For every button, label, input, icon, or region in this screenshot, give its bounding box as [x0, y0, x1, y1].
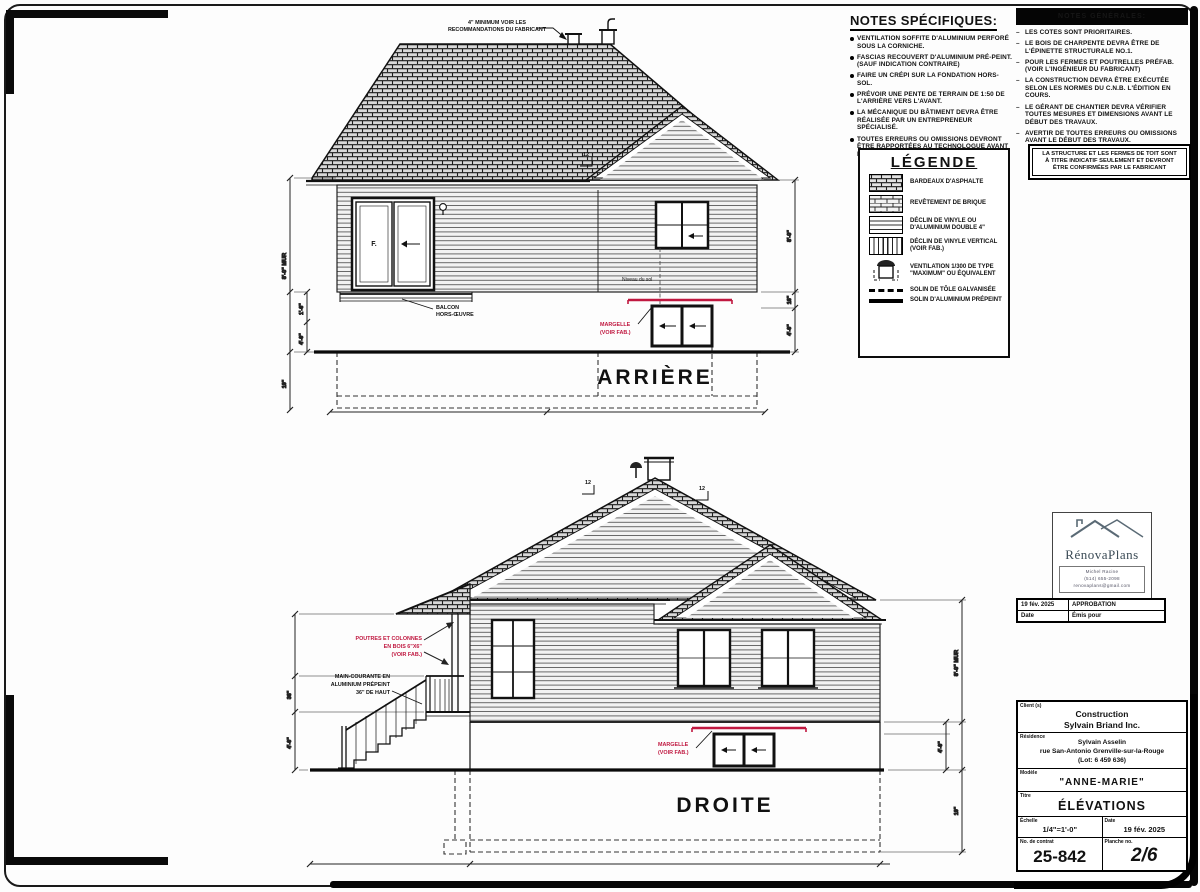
legend-item: SOLIN DE TÔLE GALVANISÉE	[868, 287, 1002, 294]
title-block: Client (s) Construction Sylvain Briand I…	[1016, 700, 1188, 872]
bullet-icon	[850, 56, 854, 60]
vent-note-line2: RECOMMANDATIONS DU FABRICANT	[448, 27, 547, 33]
right-basement-window	[714, 734, 774, 766]
legend-item: DÉCLIN DE VINYLE OU D'ALUMINIUM DOUBLE 4…	[868, 216, 1002, 234]
margelle-label-2: (VOIR FAB.)	[600, 330, 631, 336]
legend-label: VENTILATION 1/300 DE TYPE "MAXIMUM" OU É…	[910, 264, 1002, 278]
dash-icon: –	[1016, 77, 1022, 100]
note-text: LE GÉRANT DE CHANTIER DEVRA VÉRIFIER TOU…	[1025, 104, 1188, 127]
ground-level-label: Niveau du sol	[622, 277, 652, 283]
bullet-icon	[850, 111, 854, 115]
date-cell: Date 19 fév. 2025	[1103, 817, 1187, 837]
dim-rail-height: 36"	[287, 690, 293, 699]
renovaplans-logo: RénovaPlans Michel Racine (514) 655-2098…	[1052, 512, 1152, 602]
bullet-icon	[850, 138, 854, 142]
roof-vent-swatch-icon	[868, 258, 904, 284]
note-item: FAIRE UN CRÉPI SUR LA FONDATION HORS-SOL…	[850, 72, 1012, 87]
dim-footing: 10"	[282, 379, 288, 388]
posts-note-line3: (VOIR FAB.)	[391, 652, 422, 658]
right-bottom-dim-line	[307, 861, 890, 867]
solid-line-swatch-icon	[868, 299, 904, 303]
right-footing-dashed	[444, 770, 880, 854]
revision-date: 19 fév. 2025	[1018, 600, 1069, 610]
note-text: FASCIAS RECOUVERT D'ALUMINIUM PRÉ-PEINT.…	[857, 54, 1012, 69]
rear-roof-vents	[565, 19, 617, 44]
notes-specifiques-title: NOTES SPÉCIFIQUES:	[850, 13, 997, 31]
contract-cell: No. de contrat 25-842	[1018, 838, 1103, 870]
pitch-value: 12	[583, 152, 589, 158]
legend-item: VENTILATION 1/300 DE TYPE "MAXIMUM" OU É…	[868, 258, 1002, 284]
revision-table: 19 fév. 2025 APPROBATION Date Émis pour	[1016, 598, 1166, 623]
note-item: FASCIAS RECOUVERT D'ALUMINIUM PRÉ-PEINT.…	[850, 54, 1012, 69]
note-item: –LE GÉRANT DE CHANTIER DEVRA VÉRIFIER TO…	[1016, 104, 1188, 127]
right-handrail-annotation: MAIN-COURANTE EN ALUMINIUM PRÉPEINT 36" …	[331, 674, 422, 704]
client-line: Construction	[1020, 709, 1184, 720]
contact-phone: (514) 655-2098	[1060, 576, 1144, 583]
pitch-value-left: 12	[585, 480, 591, 486]
rear-balcony: BALCON HORS-ŒUVRE	[340, 292, 474, 318]
note-item: –LE BOIS DE CHARPENTE DEVRA ÊTRE DE L'ÉP…	[1016, 40, 1188, 55]
note-item: PRÉVOIR UNE PENTE DE TERRAIN DE 1:50 DE …	[850, 91, 1012, 106]
model-value: "ANNE-MARIE"	[1018, 769, 1186, 791]
vertical-siding-swatch-icon	[868, 237, 904, 255]
date-label: Date	[1105, 818, 1116, 824]
rear-view-title: ARRIÈRE	[597, 366, 713, 389]
note-item: VENTILATION SOFFITE D'ALUMINIUM PERFORÉ …	[850, 35, 1012, 50]
dim-16: 16"	[787, 295, 793, 304]
warning-line: ÊTRE CONFIRMÉES PAR LE FABRICANT	[1034, 165, 1185, 172]
residence-line: rue San-Antonio Grenville-sur-la-Rouge	[1019, 748, 1185, 757]
notes-generales-panel: NOTES GÉNÉRALES: –LES COTES SONT PRIORIT…	[1016, 8, 1188, 148]
revision-row: 19 fév. 2025 APPROBATION	[1018, 600, 1164, 611]
right-window-b	[758, 630, 818, 688]
dim-wall-height: 8'-0" MUR	[954, 650, 960, 676]
handrail-note-line1: MAIN-COURANTE EN	[335, 674, 390, 680]
title-block-scale-date: Échelle 1/4"=1'-0" Date 19 fév. 2025	[1018, 817, 1186, 838]
dim-found-b: 4'-0"	[299, 333, 305, 345]
legend-label: SOLIN D'ALUMINIUM PRÉPEINT	[910, 297, 1002, 304]
contact-email: renovaplans@gmail.com	[1060, 583, 1144, 590]
margelle-label: MARGELLE	[600, 322, 631, 328]
corner-mark-bottom-left-v	[6, 695, 14, 865]
revision-label: APPROBATION	[1069, 600, 1119, 610]
legend-panel: LÉGENDE BARDEAUX D'ASPHALTE REVÊTEMENT D…	[858, 148, 1010, 358]
horizontal-siding-swatch-icon	[868, 216, 904, 234]
brand-name: RénovaPlans	[1053, 547, 1151, 563]
contact-name: Michel Racine	[1060, 569, 1144, 576]
title-block-title: Titre ÉLÉVATIONS	[1018, 792, 1186, 817]
notes-generales-header-text: NOTES GÉNÉRALES:	[1058, 13, 1146, 20]
note-text: LES COTES SONT PRIORITAIRES.	[1025, 29, 1132, 37]
title-block-contract-sheet: No. de contrat 25-842 Planche no. 2/6	[1018, 838, 1186, 870]
shingle-swatch-icon	[868, 174, 904, 192]
bullet-icon	[850, 37, 854, 41]
dash-icon: –	[1016, 40, 1022, 55]
note-item: –LA CONSTRUCTION DEVRA ÊTRE EXÉCUTÉE SEL…	[1016, 77, 1188, 100]
margelle-label: MARGELLE	[658, 742, 689, 748]
rear-vent-note: 4" MINIMUM VOIR LES RECOMMANDATIONS DU F…	[448, 20, 567, 40]
scale-label: Échelle	[1020, 818, 1038, 824]
revision-header-label: Émis pour	[1069, 611, 1104, 621]
dashed-line-swatch-icon	[868, 289, 904, 292]
posts-note-line1: POUTRES ET COLONNES	[356, 636, 423, 642]
note-item: –AVERTIR DE TOUTES ERREURS OU OMISSIONS …	[1016, 130, 1188, 145]
dim-found-a: 1'-6"	[299, 303, 305, 315]
sheet-title-value: ÉLÉVATIONS	[1018, 792, 1186, 816]
dim-deck-height: 4'-0"	[287, 737, 293, 749]
logo-contact-block: Michel Racine (514) 655-2098 renovaplans…	[1059, 566, 1145, 593]
revision-header-row: Date Émis pour	[1018, 611, 1164, 621]
right-posts-annotation: POUTRES ET COLONNES EN BOIS 6"X6" (VOIR …	[356, 622, 455, 665]
note-item: –POUR LES FERMES ET POUTRELLES PRÉFAB. (…	[1016, 59, 1188, 74]
bullet-icon	[850, 74, 854, 78]
legend-item: REVÊTEMENT DE BRIQUE	[868, 195, 1002, 213]
note-text: VENTILATION SOFFITE D'ALUMINIUM PERFORÉ …	[857, 35, 1012, 50]
note-text: AVERTIR DE TOUTES ERREURS OU OMISSIONS A…	[1025, 130, 1188, 145]
door-panel-label: F.	[371, 241, 377, 248]
right-view-title: DROITE	[676, 794, 773, 817]
vent-note-line1: 4" MINIMUM VOIR LES	[468, 20, 526, 26]
legend-label: DÉCLIN DE VINYLE OU D'ALUMINIUM DOUBLE 4…	[910, 218, 1002, 232]
dash-icon: –	[1016, 29, 1022, 37]
handrail-note-line2: ALUMINIUM PRÉPEINT	[331, 680, 391, 688]
handrail-note-line3: 36" DE HAUT	[356, 690, 391, 696]
right-tall-window	[492, 620, 534, 698]
note-text: PRÉVOIR UNE PENTE DE TERRAIN DE 1:50 DE …	[857, 91, 1012, 106]
title-block-model: Modèle "ANNE-MARIE"	[1018, 769, 1186, 792]
dim-footing: 10"	[954, 806, 960, 815]
brick-swatch-icon	[868, 195, 904, 213]
right-window-a	[674, 630, 734, 688]
note-text: LA CONSTRUCTION DEVRA ÊTRE EXÉCUTÉE SELO…	[1025, 77, 1188, 100]
legend-item: DÉCLIN DE VINYLE VERTICAL (VOIR FAB.)	[868, 237, 1002, 255]
note-text: FAIRE UN CRÉPI SUR LA FONDATION HORS-SOL…	[857, 72, 1012, 87]
legend-title: LÉGENDE	[860, 154, 1008, 171]
client-line: Sylvain Briand Inc.	[1020, 720, 1184, 731]
structure-warning-box: LA STRUCTURE ET LES FERMES DE TOIT SONT …	[1028, 144, 1191, 180]
notes-generales-header: NOTES GÉNÉRALES:	[1016, 8, 1188, 25]
corner-mark-bottom-left-h	[6, 857, 168, 865]
title-block-residence: Résidence Sylvain Asselin rue San-Antoni…	[1018, 733, 1186, 769]
corner-mark-top-left-v	[6, 10, 14, 94]
structure-warning-text: LA STRUCTURE ET LES FERMES DE TOIT SONT …	[1032, 148, 1187, 176]
legend-label: REVÊTEMENT DE BRIQUE	[910, 200, 1002, 207]
revision-header-date: Date	[1018, 611, 1069, 621]
dim-foundation: 4'-0"	[938, 741, 944, 753]
balcony-label-2: HORS-ŒUVRE	[436, 312, 474, 318]
dim-found-right: 4'-0"	[787, 324, 793, 336]
sheet-number-cell: Planche no. 2/6	[1103, 838, 1187, 870]
notes-specifiques-panel: NOTES SPÉCIFIQUES: VENTILATION SOFFITE D…	[850, 12, 1012, 162]
contract-label: No. de contrat	[1020, 839, 1054, 845]
margelle-label-2: (VOIR FAB.)	[658, 750, 689, 756]
balcony-label: BALCON	[436, 305, 459, 311]
note-item: LA MÉCANIQUE DU BÂTIMENT DEVRA ÊTRE RÉAL…	[850, 109, 1012, 132]
corner-mark-top-left-h	[6, 10, 168, 18]
note-text: LE BOIS DE CHARPENTE DEVRA ÊTRE DE L'ÉPI…	[1025, 40, 1188, 55]
note-item: –LES COTES SONT PRIORITAIRES.	[1016, 29, 1188, 37]
right-chimney	[630, 458, 674, 480]
legend-label: BARDEAUX D'ASPHALTE	[910, 179, 1002, 186]
sheet-title-label: Titre	[1020, 793, 1031, 799]
dash-icon: –	[1016, 59, 1022, 74]
note-text: LA MÉCANIQUE DU BÂTIMENT DEVRA ÊTRE RÉAL…	[857, 109, 1012, 132]
dim-wall-right: 8'-0"	[787, 230, 793, 242]
bullet-icon	[850, 93, 854, 97]
right-elevation-drawing: 12 12	[250, 448, 990, 878]
roofline-logo-icon	[1057, 513, 1147, 541]
residence-line: (Lot: 6 459 636)	[1019, 757, 1185, 766]
rear-basement-window	[652, 306, 712, 346]
dim-wall-height: 8'-0" MUR	[282, 253, 288, 279]
rear-patio-door: F.	[352, 198, 434, 290]
sheet-number-label: Planche no.	[1105, 839, 1133, 845]
legend-item: BARDEAUX D'ASPHALTE	[868, 174, 1002, 192]
posts-note-line2: EN BOIS 6"X6"	[384, 644, 423, 650]
client-label: Client (s)	[1020, 703, 1041, 709]
legend-label: SOLIN DE TÔLE GALVANISÉE	[910, 287, 1002, 294]
title-block-client: Client (s) Construction Sylvain Briand I…	[1018, 702, 1186, 733]
scale-cell: Échelle 1/4"=1'-0"	[1018, 817, 1103, 837]
residence-label: Résidence	[1020, 734, 1045, 740]
drawing-sheet: F. BALCON HORS-ŒUVRE	[0, 0, 1200, 892]
model-label: Modèle	[1020, 770, 1037, 776]
dash-icon: –	[1016, 104, 1022, 127]
legend-item: SOLIN D'ALUMINIUM PRÉPEINT	[868, 297, 1002, 304]
rear-bottom-dim-line	[327, 409, 768, 415]
rear-elevation-drawing: F. BALCON HORS-ŒUVRE	[250, 8, 820, 420]
pitch-value-right: 12	[699, 486, 705, 492]
dash-icon: –	[1016, 130, 1022, 145]
note-text: POUR LES FERMES ET POUTRELLES PRÉFAB. (V…	[1025, 59, 1188, 74]
legend-label: DÉCLIN DE VINYLE VERTICAL (VOIR FAB.)	[910, 239, 1002, 253]
residence-line: Sylvain Asselin	[1019, 739, 1185, 748]
